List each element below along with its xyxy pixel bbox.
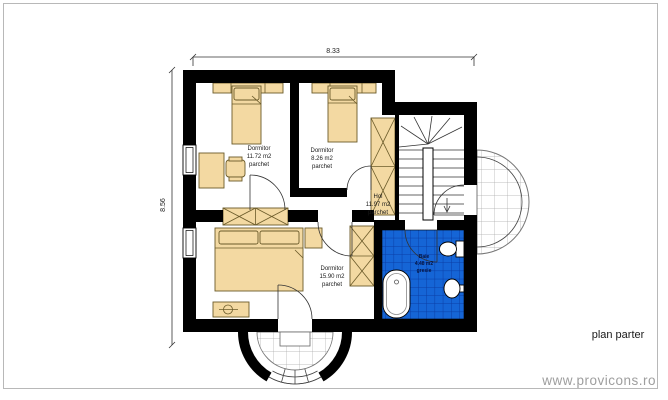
svg-text:11.97 m2: 11.97 m2 bbox=[366, 202, 391, 208]
room-label-bedroom3: Dormitor 15.90 m2 parchet bbox=[319, 266, 345, 288]
pillow-icon bbox=[234, 88, 259, 100]
svg-text:parchet: parchet bbox=[368, 210, 388, 216]
wall-bed1-bed3 bbox=[288, 210, 318, 222]
dimension-height-label: 8.56 bbox=[160, 198, 167, 212]
svg-text:parchet: parchet bbox=[322, 282, 342, 288]
wall-stair-top bbox=[382, 102, 477, 115]
wall-bed2-hall bbox=[299, 188, 347, 197]
wall-left bbox=[183, 70, 196, 332]
watermark: www.provicons.ro bbox=[541, 373, 656, 388]
window bbox=[183, 145, 196, 175]
wall-stair-left bbox=[395, 115, 399, 220]
wall-right-lower bbox=[464, 215, 477, 332]
wall-bed1-bed2 bbox=[290, 83, 299, 197]
wall-bath-left bbox=[374, 220, 382, 319]
chair-icon bbox=[226, 160, 245, 177]
svg-text:Dormitor: Dormitor bbox=[320, 266, 343, 272]
wall-bed1-bed3 bbox=[196, 210, 223, 222]
wall-right-upper bbox=[464, 115, 477, 185]
stair-spine bbox=[423, 148, 433, 220]
svg-text:Hol: Hol bbox=[373, 194, 382, 200]
floor-plan-drawing: 8.33 8.56 Dormitor 11.72 m2 parchet Dorm… bbox=[0, 0, 668, 400]
pillow-icon bbox=[260, 231, 299, 244]
pillow-icon bbox=[219, 231, 258, 244]
svg-text:15.90 m2: 15.90 m2 bbox=[319, 274, 345, 280]
svg-text:4.48 m2: 4.48 m2 bbox=[415, 261, 434, 267]
desk-icon bbox=[199, 153, 224, 188]
floor-plan-page: 8.33 8.56 Dormitor 11.72 m2 parchet Dorm… bbox=[0, 0, 668, 400]
plan-caption: plan parter bbox=[592, 329, 645, 341]
svg-text:Baie: Baie bbox=[419, 254, 430, 260]
wall-bath-top bbox=[437, 220, 464, 230]
svg-text:Dormitor: Dormitor bbox=[247, 146, 270, 152]
svg-text:8.26 m2: 8.26 m2 bbox=[311, 156, 333, 162]
wall-bottom-left bbox=[183, 319, 278, 332]
bathtub-icon bbox=[383, 270, 410, 318]
dimension-width-label: 8.33 bbox=[326, 48, 340, 55]
window bbox=[183, 228, 196, 258]
svg-text:gresie: gresie bbox=[417, 268, 432, 274]
bedroom3-wardrobe-icon bbox=[350, 226, 374, 286]
svg-text:parchet: parchet bbox=[249, 162, 269, 168]
sink-icon bbox=[444, 279, 460, 298]
toilet-icon bbox=[440, 242, 457, 256]
terrace-landing bbox=[280, 332, 310, 346]
wall-bottom-right bbox=[312, 319, 477, 332]
dresser-icon bbox=[223, 208, 288, 225]
wall-top bbox=[183, 70, 395, 83]
room-label-bedroom1: Dormitor 11.72 m2 parchet bbox=[247, 146, 272, 168]
room-label-bedroom2: Dormitor 8.26 m2 parchet bbox=[310, 148, 333, 170]
toilet-tank-icon bbox=[456, 241, 464, 257]
svg-text:parchet: parchet bbox=[312, 164, 332, 170]
hall-wardrobe-icon bbox=[371, 118, 395, 215]
svg-text:11.72 m2: 11.72 m2 bbox=[247, 154, 272, 160]
svg-text:Dormitor: Dormitor bbox=[310, 148, 333, 154]
